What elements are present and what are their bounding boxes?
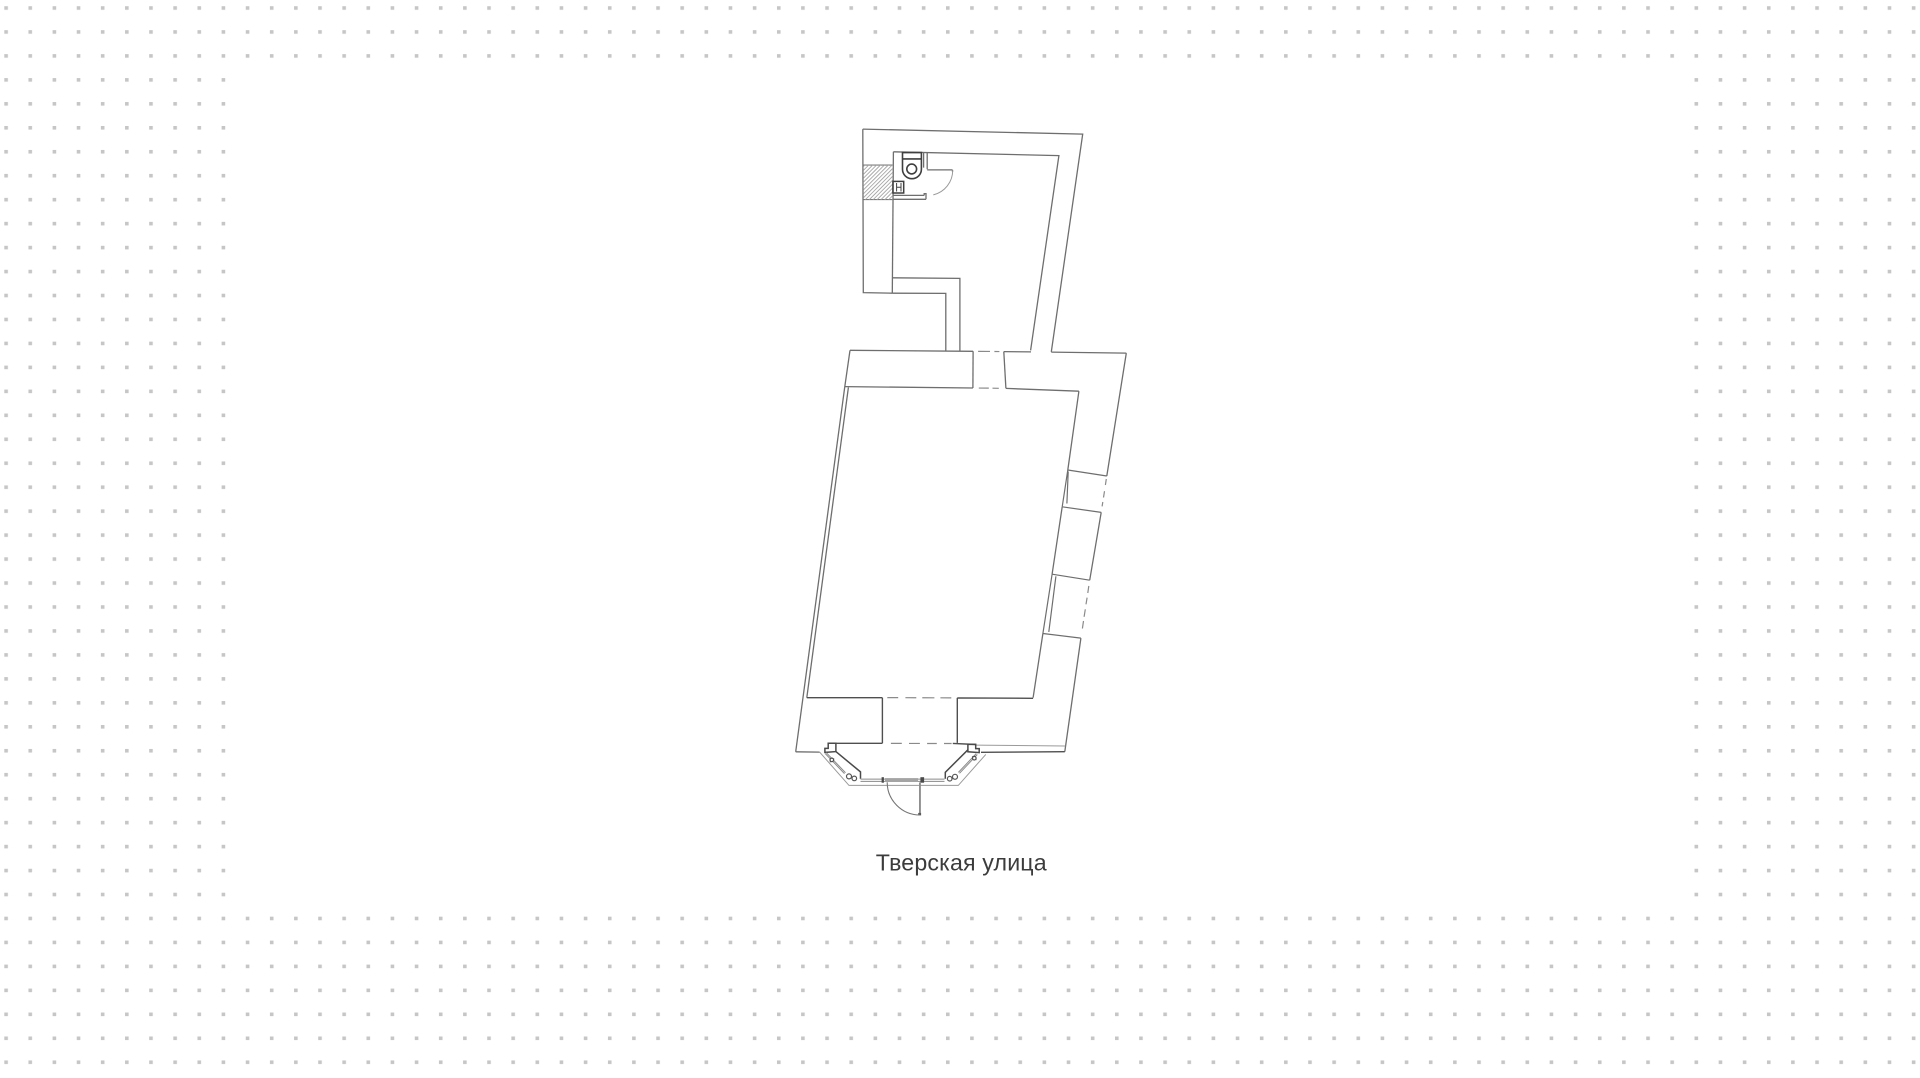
svg-text:Тверская улица: Тверская улица [876,849,1047,875]
